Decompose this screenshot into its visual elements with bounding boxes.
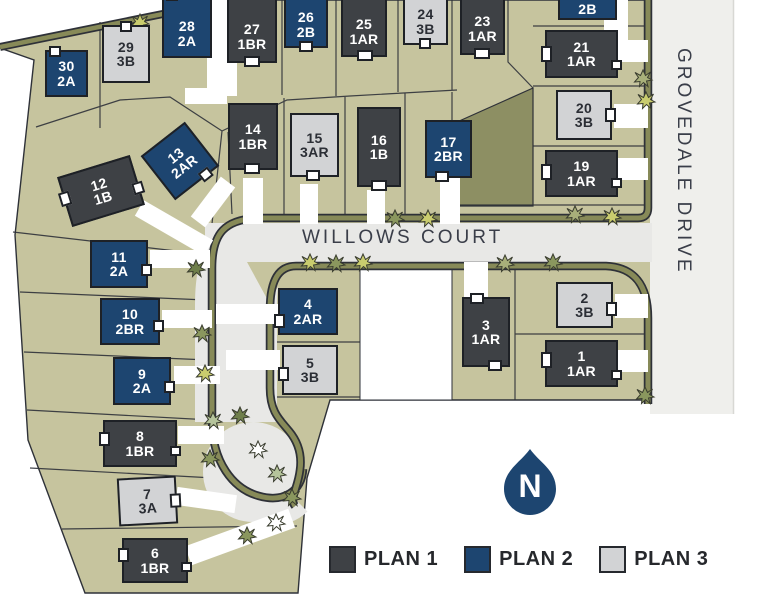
driveway (226, 350, 280, 370)
driveway (618, 40, 648, 62)
lot-plan-code: 2A (110, 264, 129, 279)
lot-25-building[interactable]: 251AR (341, 0, 387, 57)
lot-number: 19 (573, 159, 589, 174)
lot-17-building[interactable]: 172BR (425, 120, 472, 178)
lot-plan-code: 3B (575, 305, 594, 320)
lot-10-building[interactable]: 102BR (100, 298, 160, 345)
lot-plan-code: 1BR (238, 37, 267, 52)
lot-11-building[interactable]: 112A (90, 240, 148, 288)
lot-7-building[interactable]: 73A (117, 475, 178, 526)
driveway (367, 190, 385, 224)
driveway (243, 178, 263, 224)
driveway (440, 178, 460, 224)
legend-item-plan1: PLAN 1 (329, 546, 438, 573)
lot-plan-code: 1BR (126, 444, 155, 459)
lot-2B-building[interactable]: 2B (558, 0, 617, 20)
lot-number: 14 (245, 122, 261, 137)
lot-number: 8 (136, 429, 144, 444)
driveway (618, 350, 648, 372)
lot-plan-code: 3AR (300, 145, 329, 160)
lot-plan-code: 1AR (567, 364, 596, 379)
lot-2-building[interactable]: 23B (556, 282, 613, 328)
lot-16-building[interactable]: 161B (357, 107, 401, 187)
lot-number: 11 (111, 250, 126, 265)
lot-19-building[interactable]: 191AR (545, 150, 618, 197)
plan3-swatch-icon (599, 546, 626, 573)
lot-20-building[interactable]: 203B (556, 90, 612, 140)
lot-plan-code: 1AR (468, 29, 497, 44)
lot-9-building[interactable]: 92A (113, 357, 171, 405)
lot-plan-code: 1BR (239, 137, 268, 152)
north-label: N (498, 468, 562, 505)
lot-number: 23 (474, 14, 490, 29)
lot-plan-code: 2BR (434, 149, 463, 164)
lot-plan-code: 3B (117, 54, 136, 69)
lot-number: 2 (580, 291, 588, 306)
lot-28-building[interactable]: 282A (162, 0, 212, 58)
plan1-swatch-icon (329, 546, 356, 573)
lot-plan-code: 1AR (350, 32, 379, 47)
lot-23-building[interactable]: 231AR (460, 0, 505, 55)
lot-8-building[interactable]: 81BR (103, 420, 177, 467)
lot-1-building[interactable]: 11AR (545, 340, 618, 387)
site-plan: 11AR23B31AR42AR53B61BR73A81BR92A102BR112… (0, 0, 769, 612)
driveway (178, 426, 224, 444)
lot-15-building[interactable]: 153AR (290, 113, 339, 177)
street-label-willows-court: WILLOWS COURT (302, 227, 503, 249)
legend-item-plan2: PLAN 2 (464, 546, 573, 573)
lot-plan-code: 1B (92, 188, 114, 207)
lot-plan-code: 2A (133, 381, 152, 396)
lot-number: 3 (482, 318, 490, 333)
lot-plan-code: 2BR (116, 322, 145, 337)
north-arrow: N (498, 446, 562, 528)
lot-30-building[interactable]: 302A (45, 50, 88, 97)
lot-14-building[interactable]: 141BR (228, 103, 278, 170)
lot-number: 15 (306, 131, 322, 146)
lot-number: 24 (417, 7, 433, 22)
lot-plan-code: 1AR (567, 54, 596, 69)
lot-plan-code: 3B (301, 370, 320, 385)
lot-plan-code: 2AR (294, 312, 323, 327)
lot-number: 4 (304, 297, 312, 312)
lot-number: 21 (573, 40, 589, 55)
lot-26-building[interactable]: 262B (284, 0, 328, 48)
plan3-label: PLAN 3 (634, 548, 708, 571)
driveway (162, 310, 212, 328)
lot-number: 20 (576, 101, 592, 116)
lot-plan-code: 1BR (141, 561, 170, 576)
lot-plan-code: 1AR (567, 174, 596, 189)
lot-number: 27 (244, 22, 260, 37)
driveway (216, 304, 280, 324)
lot-number: 6 (151, 546, 159, 561)
lot-number: 26 (298, 10, 314, 25)
lot-6-building[interactable]: 61BR (122, 538, 188, 583)
lot-number: 25 (356, 17, 372, 32)
plan1-label: PLAN 1 (364, 548, 438, 571)
plan2-swatch-icon (464, 546, 491, 573)
willows-court-stem (236, 262, 247, 422)
driveway (615, 294, 648, 318)
lot-plan-code: 3B (575, 115, 594, 130)
lot-plan-code: 3A (138, 501, 157, 516)
lot-plan-code: 3B (416, 22, 435, 37)
lot-number: 28 (179, 19, 195, 34)
lot-plan-code: 2B (297, 25, 316, 40)
lot-21-building[interactable]: 211AR (545, 30, 618, 78)
street-label-grovedale-drive: GROVEDALE DRIVE (672, 48, 694, 275)
driveway (300, 184, 318, 224)
lot-number: 30 (58, 59, 74, 74)
lot-29-building[interactable]: 293B (102, 25, 150, 83)
lot-number: 10 (122, 307, 138, 322)
lot-27-building[interactable]: 271BR (227, 0, 277, 63)
lot-5-building[interactable]: 53B (282, 345, 338, 395)
plan2-label: PLAN 2 (499, 548, 573, 571)
lot-number: 5 (306, 356, 314, 371)
parcel-gap (360, 268, 452, 400)
lot-plan-code: 1AR (472, 332, 501, 347)
lot-number: 29 (118, 40, 134, 55)
legend: PLAN 1 PLAN 2 PLAN 3 (329, 546, 708, 573)
lot-number: 17 (440, 135, 456, 150)
lot-number: 16 (371, 133, 387, 148)
driveway (185, 88, 227, 104)
lot-plan-code: 2A (178, 34, 197, 49)
lot-plan-code: 1B (370, 147, 389, 162)
lot-3-building[interactable]: 31AR (462, 297, 510, 367)
lot-4-building[interactable]: 42AR (278, 288, 338, 335)
lot-plan-code: 2A (57, 74, 76, 89)
legend-item-plan3: PLAN 3 (599, 546, 708, 573)
driveway (618, 158, 648, 180)
lot-number: 9 (138, 367, 146, 382)
lot-plan-code: 2B (578, 2, 597, 17)
lot-24-building[interactable]: 243B (403, 0, 448, 45)
lot-number: 1 (577, 349, 585, 364)
